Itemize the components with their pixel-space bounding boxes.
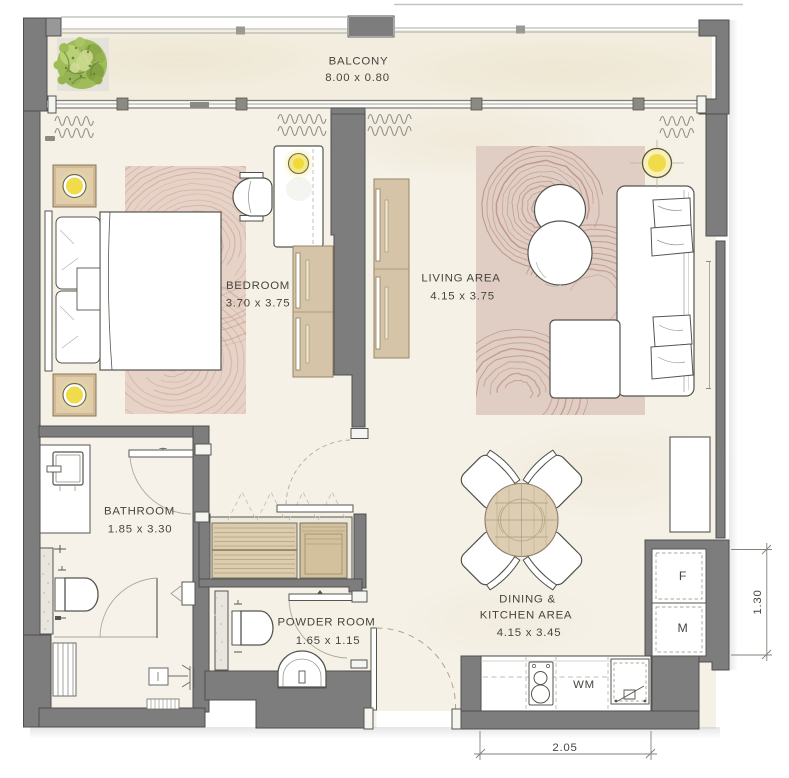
- svg-text:1.65 x 1.15: 1.65 x 1.15: [296, 635, 361, 647]
- svg-text:1.30: 1.30: [752, 589, 764, 614]
- svg-text:8.00 x 0.80: 8.00 x 0.80: [325, 72, 390, 84]
- svg-text:1.85 x 3.30: 1.85 x 3.30: [108, 524, 173, 536]
- svg-text:BALCONY: BALCONY: [329, 56, 389, 68]
- svg-text:WM: WM: [573, 679, 595, 691]
- svg-text:M: M: [678, 621, 689, 635]
- svg-text:KITCHEN AREA: KITCHEN AREA: [480, 610, 573, 622]
- svg-text:4.15 x 3.75: 4.15 x 3.75: [430, 291, 495, 303]
- svg-text:LIVING AREA: LIVING AREA: [421, 273, 500, 285]
- svg-text:2.05: 2.05: [552, 742, 577, 754]
- svg-text:DINING &: DINING &: [499, 594, 556, 606]
- svg-text:POWDER ROOM: POWDER ROOM: [277, 617, 375, 629]
- svg-text:BEDROOM: BEDROOM: [226, 280, 290, 292]
- svg-text:3.70 x 3.75: 3.70 x 3.75: [226, 298, 291, 310]
- svg-text:F: F: [679, 569, 687, 583]
- svg-text:4.15 x 3.45: 4.15 x 3.45: [497, 627, 562, 639]
- svg-text:BATHROOM: BATHROOM: [104, 506, 175, 518]
